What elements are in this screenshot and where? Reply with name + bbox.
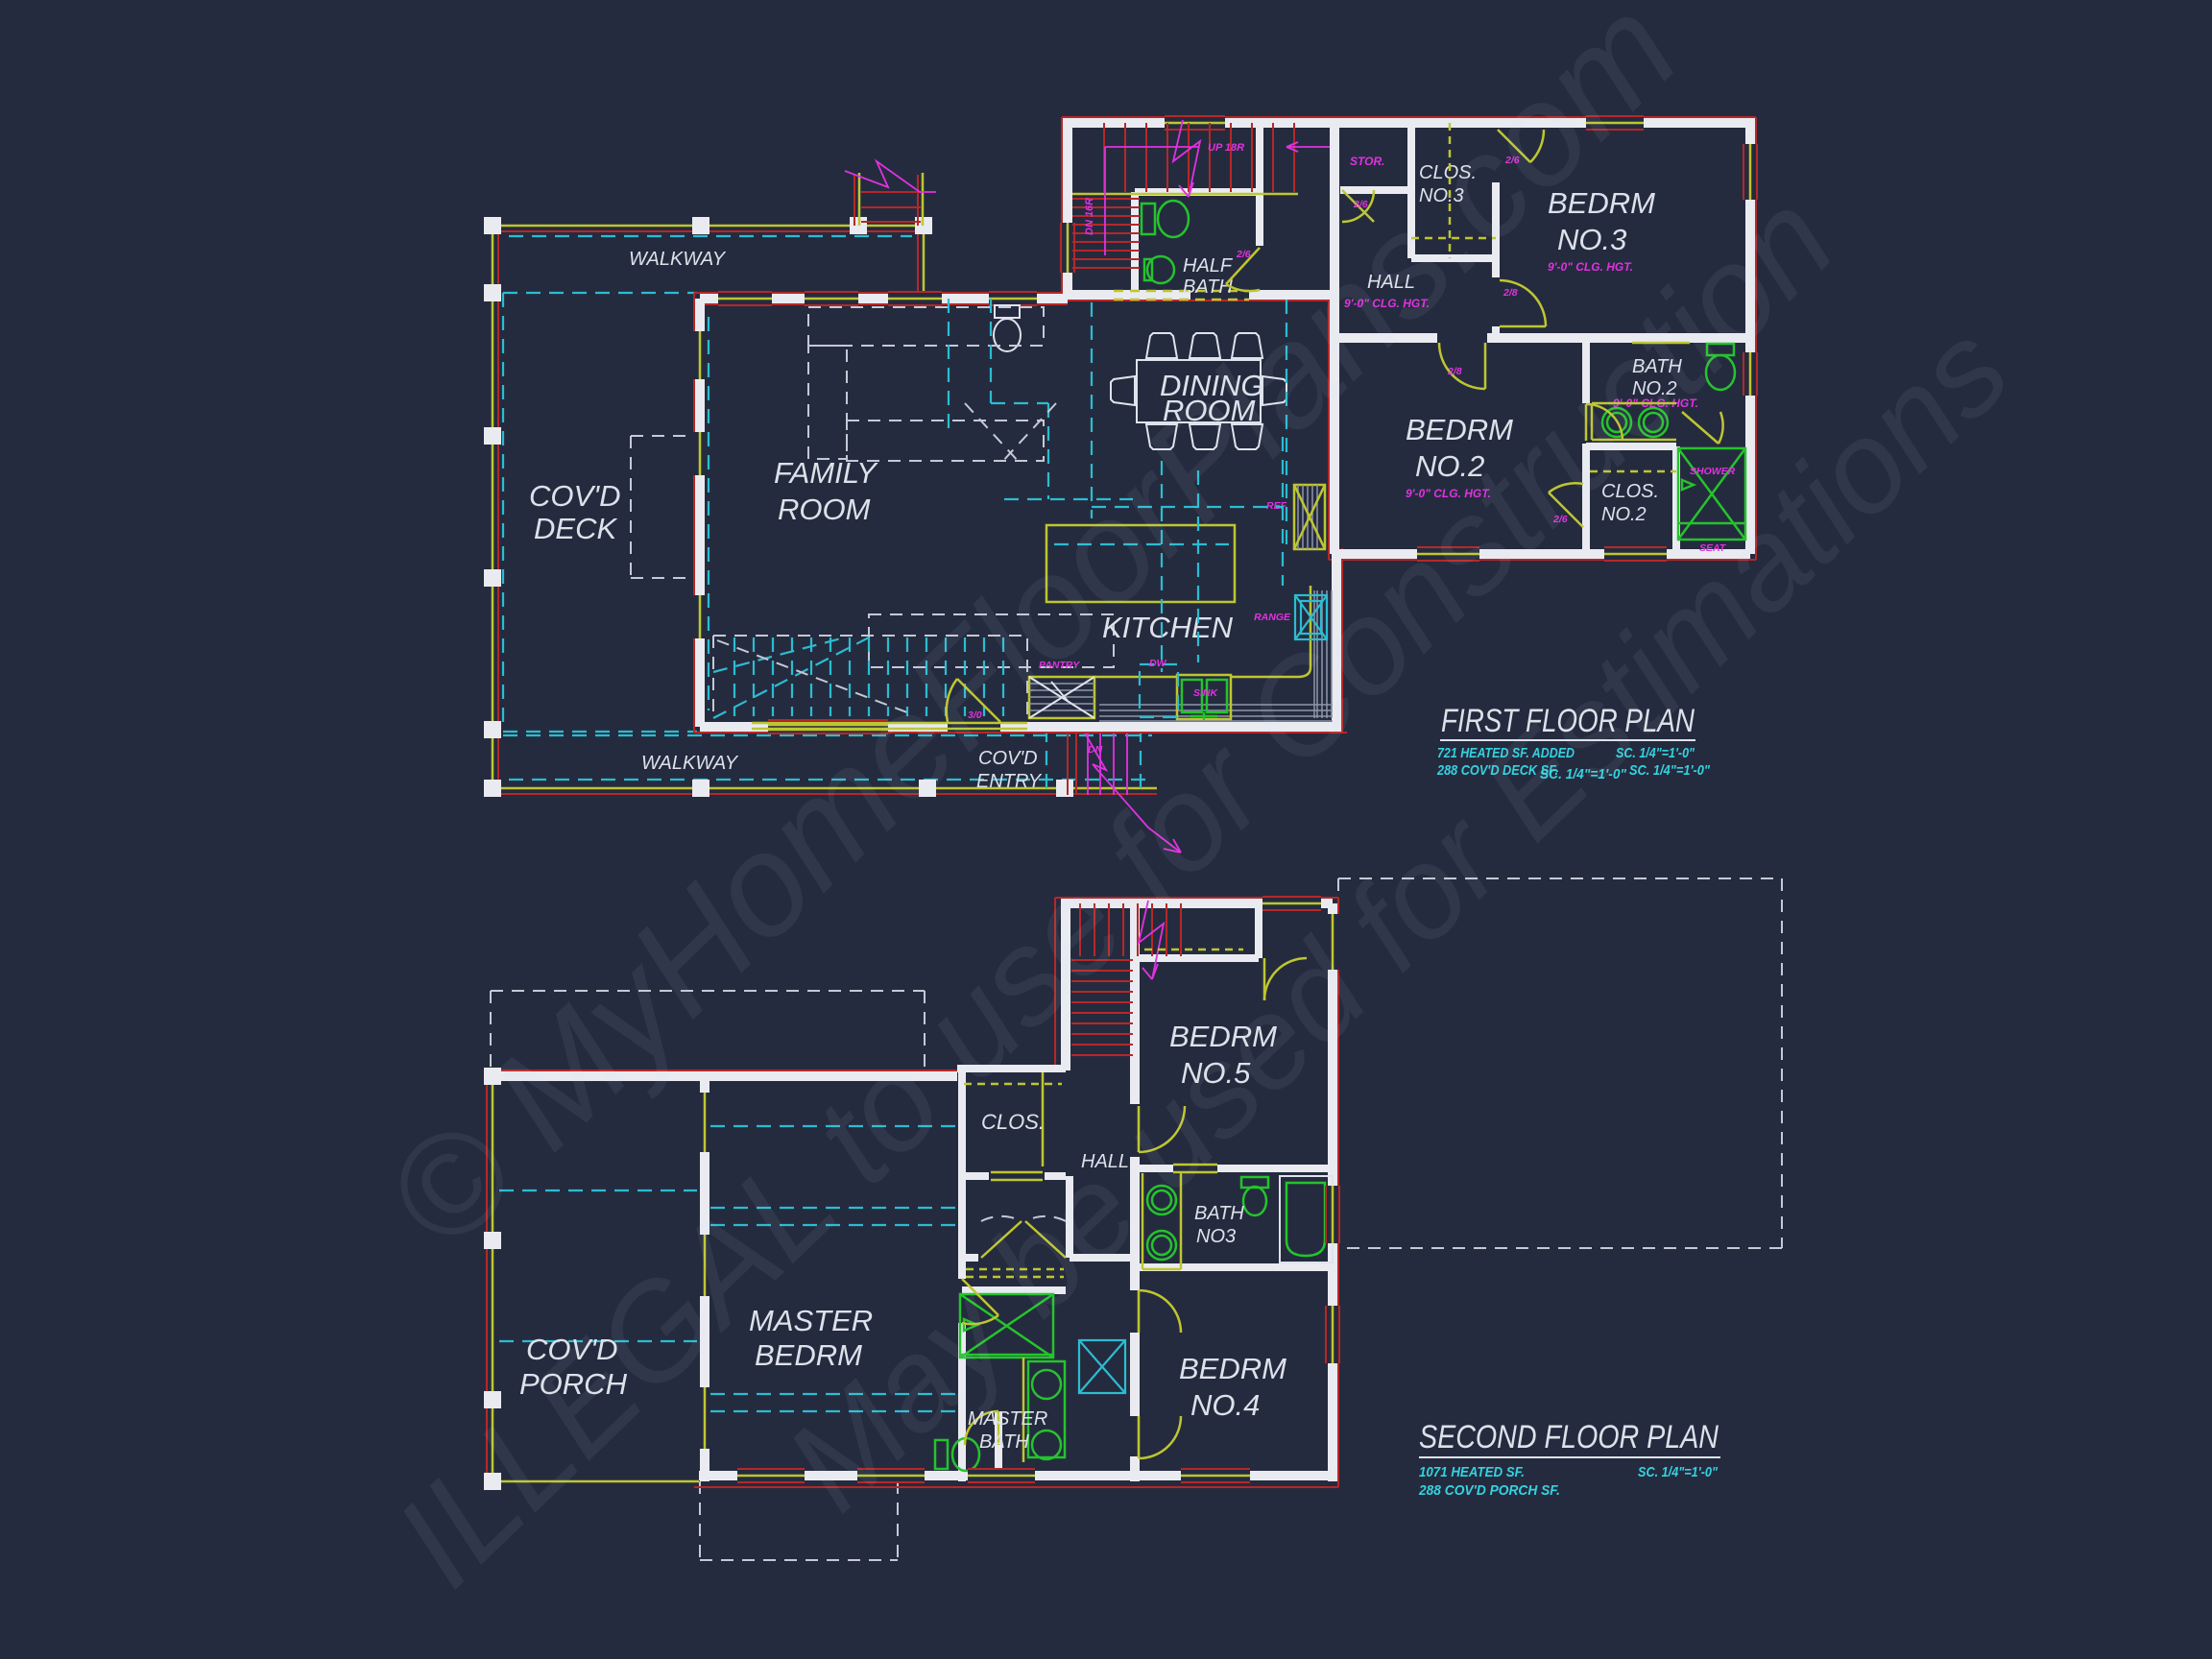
svg-text:1071 HEATED SF.: 1071 HEATED SF. <box>1419 1464 1525 1480</box>
svg-text:DN: DN <box>1088 744 1103 756</box>
svg-text:2/6: 2/6 <box>1236 249 1251 260</box>
svg-text:BEDRM: BEDRM <box>1179 1352 1286 1385</box>
svg-text:WALKWAY: WALKWAY <box>641 753 739 774</box>
svg-text:UP 18R: UP 18R <box>1208 142 1244 154</box>
svg-text:NO.3: NO.3 <box>1557 223 1626 256</box>
svg-text:DN 16R: DN 16R <box>1084 198 1095 235</box>
svg-text:COV'D: COV'D <box>529 479 620 513</box>
svg-text:STOR.: STOR. <box>1350 155 1384 168</box>
svg-text:SECOND FLOOR PLAN: SECOND FLOOR PLAN <box>1419 1419 1719 1455</box>
svg-text:BATH: BATH <box>1183 276 1233 298</box>
svg-text:ROOM: ROOM <box>778 493 871 526</box>
svg-text:NO3: NO3 <box>1196 1226 1236 1247</box>
svg-text:2/8: 2/8 <box>1503 287 1518 299</box>
svg-text:2/8: 2/8 <box>1447 366 1462 377</box>
svg-text:FAMILY: FAMILY <box>774 456 878 490</box>
svg-text:NO.4: NO.4 <box>1190 1388 1260 1422</box>
svg-text:WALKWAY: WALKWAY <box>629 249 727 270</box>
svg-text:SC. 1/4"=1'-0": SC. 1/4"=1'-0" <box>1638 1464 1719 1480</box>
svg-text:CLOS.: CLOS. <box>981 1110 1045 1134</box>
svg-text:288 COV'D PORCH SF.: 288 COV'D PORCH SF. <box>1418 1482 1560 1499</box>
svg-text:DW: DW <box>1149 658 1167 669</box>
svg-text:BATH: BATH <box>979 1431 1029 1453</box>
svg-text:DECK: DECK <box>534 512 617 545</box>
svg-text:SHOWER: SHOWER <box>1690 466 1736 477</box>
svg-text:9'-0" CLG. HGT.: 9'-0" CLG. HGT. <box>1548 260 1633 274</box>
svg-text:HALF: HALF <box>1183 255 1234 276</box>
